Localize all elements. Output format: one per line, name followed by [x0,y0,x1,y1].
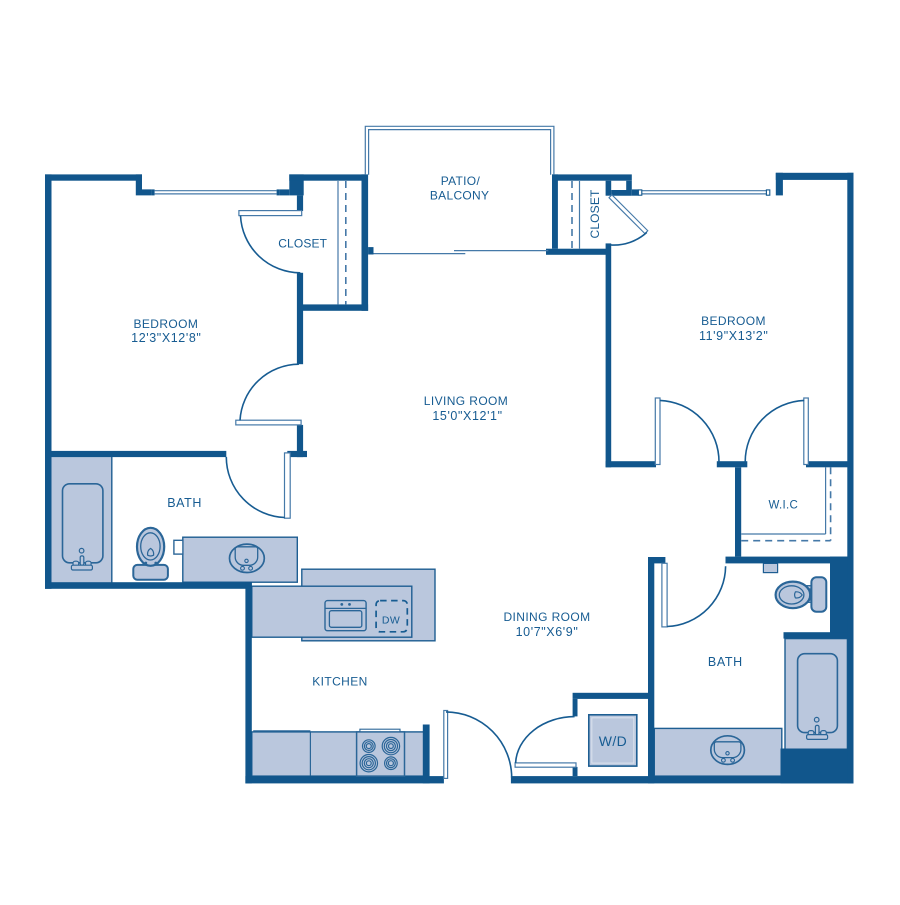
svg-text:BATH: BATH [708,655,743,669]
svg-text:W/D: W/D [599,733,627,749]
svg-text:PATIO/: PATIO/ [441,174,481,188]
svg-text:DW: DW [382,615,400,627]
svg-text:DINING ROOM: DINING ROOM [503,610,590,624]
svg-text:BEDROOM: BEDROOM [701,314,766,328]
svg-text:BEDROOM: BEDROOM [133,317,198,331]
svg-text:10'7"X6'9": 10'7"X6'9" [516,625,579,639]
svg-text:CLOSET: CLOSET [588,189,602,238]
svg-text:BALCONY: BALCONY [430,189,489,203]
svg-text:BATH: BATH [167,496,202,510]
svg-text:CLOSET: CLOSET [278,236,327,250]
svg-text:W.I.C: W.I.C [768,500,798,512]
svg-text:15'0"X12'1": 15'0"X12'1" [432,409,502,423]
svg-text:11'9"X13'2": 11'9"X13'2" [699,329,768,343]
svg-text:LIVING ROOM: LIVING ROOM [424,394,508,408]
svg-text:KITCHEN: KITCHEN [312,675,367,689]
svg-text:12'3"X12'8": 12'3"X12'8" [131,331,201,345]
